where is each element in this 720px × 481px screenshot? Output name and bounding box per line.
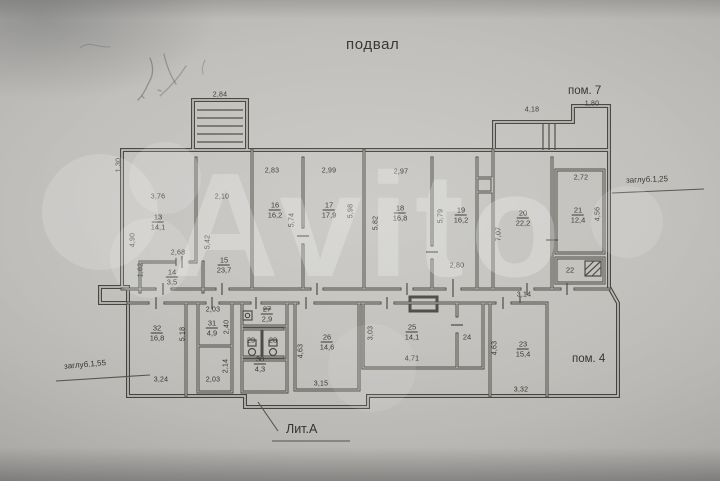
room-label-13: 1314,1 (151, 213, 166, 232)
room-label-14: 143,5 (166, 268, 178, 287)
dimension-label: 3,14 (517, 292, 531, 299)
dimension-label: 2,80 (450, 263, 464, 270)
dimension-label: 3,15 (314, 381, 328, 388)
dimension-label: 4,90 (130, 233, 137, 247)
room-label-26: 2614,6 (320, 333, 335, 352)
dimension-label: 3,32 (514, 387, 528, 394)
dimension-label: 5,74 (289, 213, 296, 227)
room-label-17: 1717,9 (322, 201, 337, 220)
room-label-28: 28 (269, 336, 277, 345)
dimension-label: 4,71 (405, 356, 419, 363)
dimension-label: 4,63 (492, 341, 499, 355)
dimension-label: 3,24 (154, 377, 168, 384)
room-label-30: 304,3 (254, 355, 266, 374)
dimension-label: 3,76 (151, 194, 165, 201)
dimension-label: 2,84 (213, 92, 227, 99)
dimension-label: 5,98 (348, 204, 355, 218)
room-label-24: 24 (463, 333, 471, 342)
room-label-18: 1816,8 (393, 204, 408, 223)
dimension-label: 2,99 (322, 168, 336, 175)
dimension-label: 2,83 (265, 168, 279, 175)
dimension-label: 1,62 (138, 263, 145, 277)
dimension-label: 2,72 (574, 175, 588, 182)
dimension-label: 1,80 (585, 101, 599, 108)
room-label-25: 2514,1 (405, 323, 420, 342)
room-label-21: 2112,4 (571, 206, 586, 225)
dimension-label: 4,18 (525, 107, 539, 114)
room-label-23: 2315,4 (516, 340, 531, 359)
dimension-label: 1,30 (116, 158, 123, 172)
dimension-label: 2,97 (394, 169, 408, 176)
dimension-label: 2,68 (171, 250, 185, 257)
dimension-label: 2,10 (215, 194, 229, 201)
room-label-15: 1523,7 (217, 256, 232, 275)
dimension-label: 2,03 (206, 377, 220, 384)
room-label-29: 29 (247, 336, 255, 345)
room-label-16: 1616,2 (268, 201, 283, 220)
room-label-27: 272,9 (261, 305, 273, 324)
room-label-20: 2022,2 (516, 209, 531, 228)
dimension-label: 5,79 (438, 209, 445, 223)
dimension-label: 5,42 (205, 235, 212, 249)
plan-labels-layer: 2,844,181,803,762,102,832,992,972,722,68… (0, 0, 720, 481)
dimension-label: 5,82 (373, 216, 380, 230)
dimension-label: 3,03 (368, 326, 375, 340)
dimension-label: 7,07 (496, 227, 503, 241)
dimension-label: 4,63 (298, 344, 305, 358)
room-label-22: 22 (566, 266, 574, 275)
scanned-floor-plan-photo: подвал пом. 7 пом. 4 Лит.А заглуб.1,25 з… (0, 0, 720, 481)
dimension-label: 4,56 (595, 207, 602, 221)
dimension-label: 2,03 (206, 307, 220, 314)
dimension-label: 5,18 (180, 327, 187, 341)
room-label-31: 314,9 (206, 319, 218, 338)
dimension-label: 2,14 (223, 359, 230, 373)
room-label-32: 3216,8 (150, 324, 165, 343)
dimension-label: 2,40 (224, 320, 231, 334)
room-label-19: 1916,2 (454, 206, 469, 225)
